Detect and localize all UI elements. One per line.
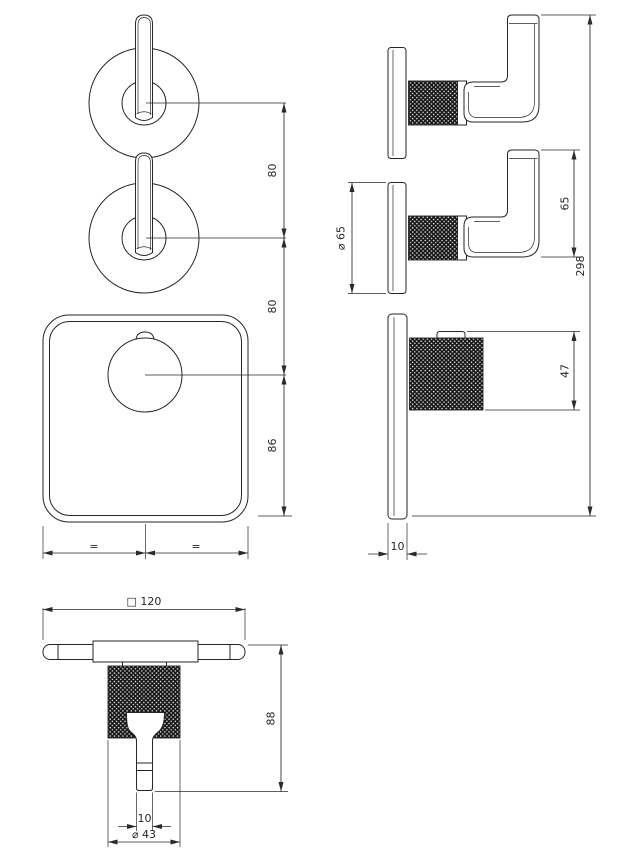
front-knob-lower <box>89 153 199 293</box>
plate-side <box>388 314 407 519</box>
knob-index-tab-side <box>437 332 465 339</box>
front-plate <box>43 315 248 522</box>
valve-stem-section <box>127 713 165 791</box>
lever-handle-side <box>464 15 539 122</box>
dim-label-dia43: ⌀ 43 <box>132 828 156 841</box>
dim-label-10-bottom: 10 <box>138 812 152 825</box>
technical-drawing: 80 80 86 = = <box>0 0 622 856</box>
knurled-grip <box>409 216 458 260</box>
dim-label-47: 47 <box>559 364 572 378</box>
dim-label-80-upper: 80 <box>266 164 279 178</box>
dim-label-10-side: 10 <box>391 540 405 553</box>
front-view <box>43 15 286 522</box>
front-dimensions: 80 80 86 = = <box>43 103 292 559</box>
side-view-plate <box>388 314 483 519</box>
knurled-grip <box>409 81 458 125</box>
bottom-section-view <box>43 641 245 791</box>
side-view-handle-lower <box>388 150 539 294</box>
dim-label-80-lower: 80 <box>266 300 279 314</box>
knurled-knob-side <box>410 338 484 410</box>
drawing-page: 80 80 86 = = <box>0 0 622 856</box>
dim-label-sq120: □ 120 <box>127 595 162 608</box>
lever-handle-side <box>464 150 539 257</box>
dim-label-298: 298 <box>574 256 587 277</box>
plate-center-section <box>93 641 198 662</box>
dim-label-dia65: ⌀ 65 <box>335 226 348 250</box>
front-knob-upper <box>89 15 199 158</box>
dim-label-88: 88 <box>265 712 278 726</box>
dim-label-65: 65 <box>559 197 572 211</box>
dim-label-equal-right: = <box>191 540 200 553</box>
dim-label-86: 86 <box>266 439 279 453</box>
dim-label-equal-left: = <box>89 540 98 553</box>
side-view-handle-upper <box>388 15 539 159</box>
escutcheon-side <box>388 183 406 294</box>
escutcheon-side <box>388 48 406 159</box>
